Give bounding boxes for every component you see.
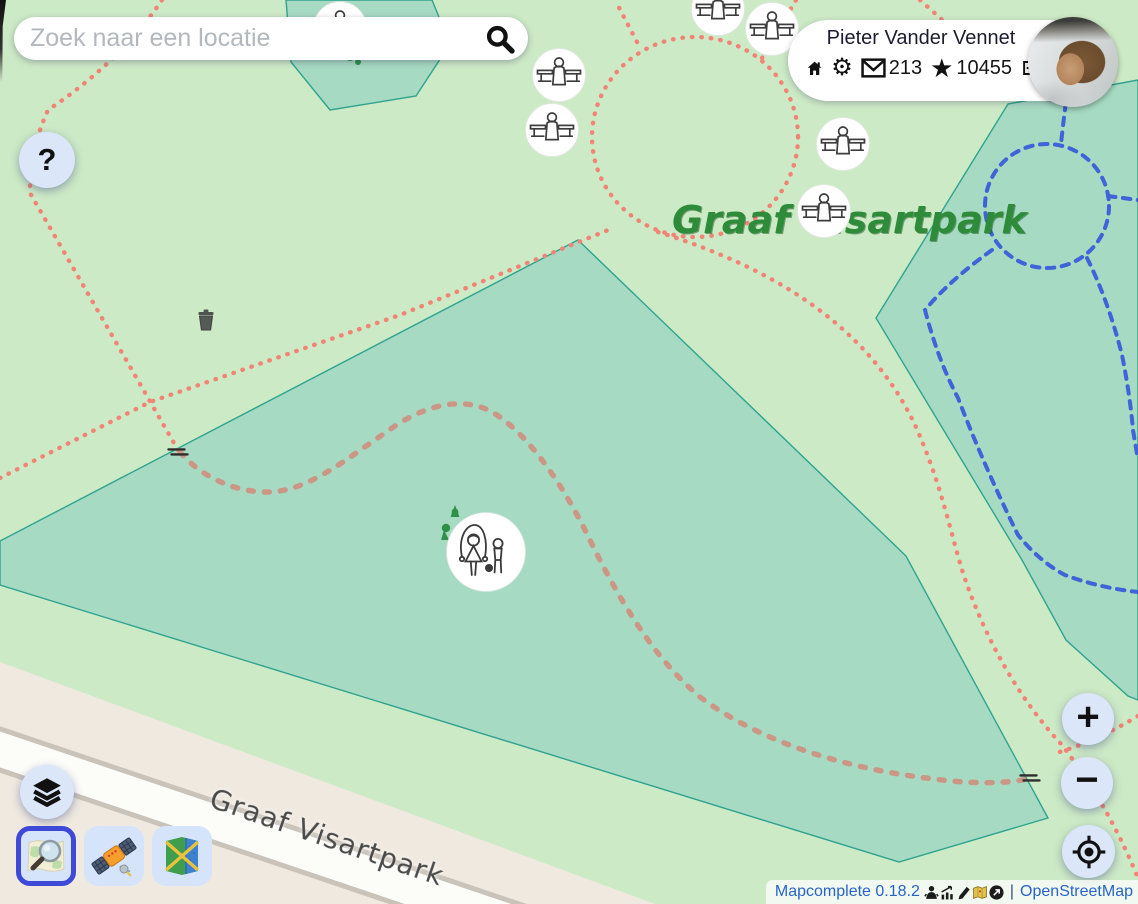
osm-carto-icon [23,833,69,879]
envelope-icon[interactable] [861,58,886,78]
basemap-option-map[interactable] [152,826,212,886]
attribution-bar: Mapcomplete 0.18.2 [766,880,1138,904]
zoom-out-button[interactable]: − [1061,757,1113,809]
picnic-table-marker[interactable] [798,185,851,238]
attribution-app-version: Mapcomplete 0.18.2 [775,883,920,901]
geolocate-button[interactable] [1062,825,1115,878]
attribution-icons [924,885,1004,900]
picnic-table-marker[interactable] [692,0,745,35]
zoom-out-label: − [1075,758,1098,803]
gear-icon[interactable]: ⚙ [831,56,853,80]
help-label: ? [38,142,57,178]
waste-basket-icon [199,310,214,331]
basemap-switcher [16,826,212,886]
map-canvas[interactable]: Graaf Visartpark Graaf Visartpark [0,0,1138,904]
basemap-option-satellite[interactable] [84,826,144,886]
layers-icon [30,775,64,809]
osm-disc-icon[interactable] [989,885,1004,900]
mapcomplete-app: Graaf Visartpark Graaf Visartpark Pieter… [0,0,1138,904]
search-icon[interactable] [484,23,516,55]
crosshair-icon [1071,834,1107,870]
playground-marker[interactable] [447,513,526,592]
layers-button[interactable] [20,765,74,819]
search-input[interactable] [28,23,484,54]
changeset-count: 10455 [956,57,1012,80]
zoom-in-button[interactable]: + [1062,693,1114,745]
user-avatar[interactable] [1028,17,1118,107]
attribution-separator: | [1008,883,1016,901]
park-name-label: Graaf Visartpark [672,198,1029,242]
basemap-option-osm-carto[interactable] [16,826,76,886]
messages-count: 213 [889,57,922,80]
map-icon [159,833,205,879]
pencil-icon[interactable] [956,885,971,900]
picnic-table-marker[interactable] [533,49,586,102]
search-bar [14,17,528,60]
picnic-table-marker[interactable] [817,118,870,171]
picnic-table-marker[interactable] [526,104,579,157]
stats-chart-icon[interactable] [940,885,955,900]
contributor-icon[interactable] [924,885,939,900]
home-icon[interactable] [806,57,823,80]
zoom-in-label: + [1076,695,1099,740]
user-name: Pieter Vander Vennet [804,27,1038,50]
star-icon: ★ [930,55,953,81]
map-icon-small[interactable] [972,885,988,900]
attribution-osm-link[interactable]: OpenStreetMap [1020,883,1133,901]
help-button[interactable]: ? [19,132,75,188]
satellite-icon [90,832,138,880]
